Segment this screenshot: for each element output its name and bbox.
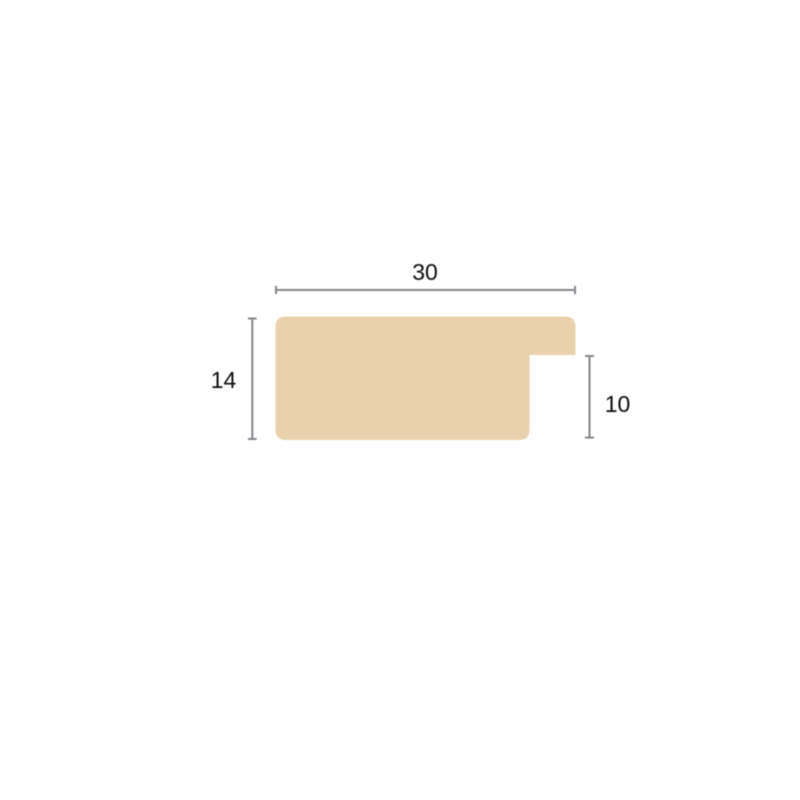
svg-text:10: 10 (605, 391, 631, 417)
svg-text:30: 30 (412, 259, 438, 285)
svg-text:14: 14 (211, 367, 237, 393)
